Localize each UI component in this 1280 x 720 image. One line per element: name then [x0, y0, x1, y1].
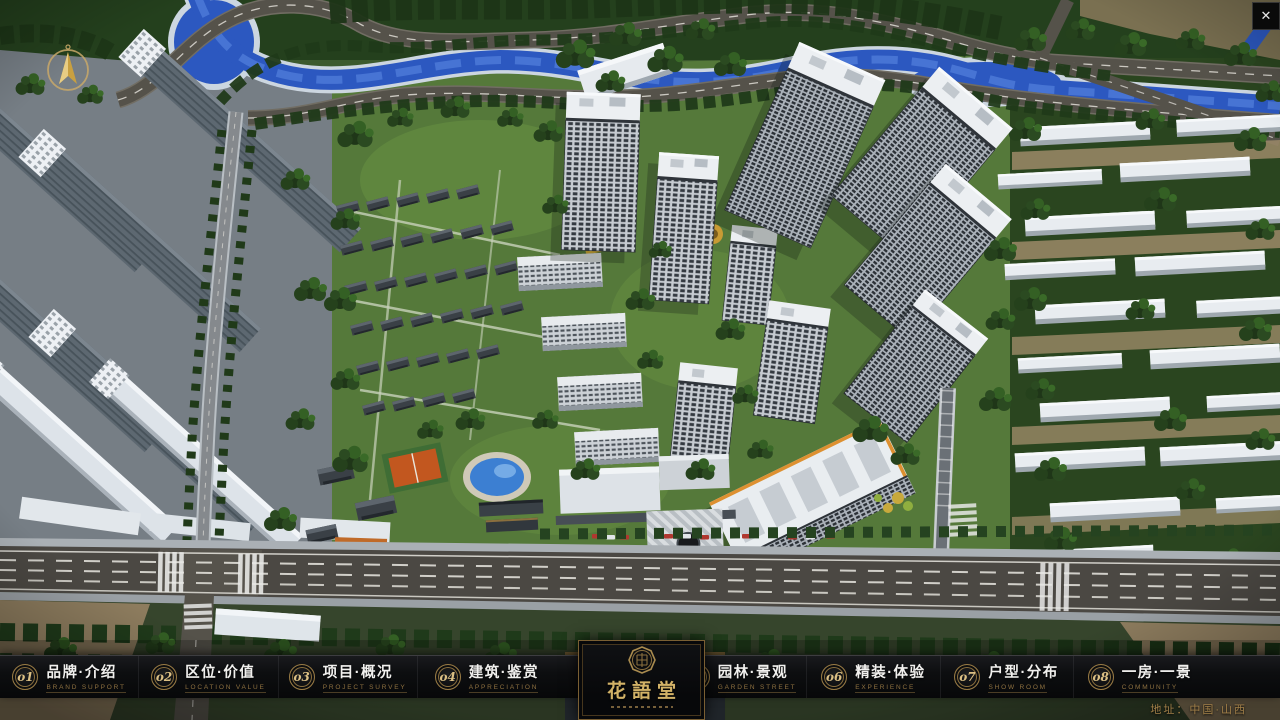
- nav-number-badge: o2: [151, 664, 177, 690]
- nav-label-en: PROJECT SURVEY: [323, 684, 407, 693]
- nav-label-en: SHOW ROOM: [988, 684, 1046, 693]
- nav-label-zh: 精装·体验: [855, 661, 925, 682]
- nav-number-badge: o4: [435, 664, 461, 690]
- close-button[interactable]: ✕: [1252, 2, 1280, 30]
- nav-label-en: LOCATION VALUE: [185, 684, 266, 693]
- logo-seal-icon: [628, 646, 656, 674]
- nav-item-interior[interactable]: o6 精装·体验EXPERIENCE: [806, 656, 939, 698]
- logo-tagline: [611, 706, 673, 708]
- nav-label-en: GARDEN STREET: [718, 684, 797, 693]
- nav-label-zh: 户型·分布: [988, 661, 1058, 682]
- project-logo-panel: 花語堂: [578, 640, 705, 720]
- nav-number-badge: o3: [289, 664, 315, 690]
- nav-label-zh: 园林·景观: [718, 661, 788, 682]
- nav-label-zh: 一房·一景: [1122, 661, 1192, 682]
- nav-label-en: APPRECIATION: [469, 684, 539, 693]
- nav-item-views[interactable]: o8 一房·一景COMMUNITY: [1073, 656, 1206, 698]
- project-address: 地址：中国·山西: [1150, 701, 1247, 717]
- presentation-window: ✕ o1 品牌·介绍BRAND SUPPORT o2 区位·价值LOCATION…: [0, 0, 1280, 720]
- masterplan-3d-view[interactable]: [0, 0, 1280, 720]
- project-logo-title: 花語堂: [601, 676, 682, 703]
- nav-item-project[interactable]: o3 项目·概况PROJECT SURVEY: [278, 656, 417, 698]
- nav-number-badge: o7: [954, 664, 980, 690]
- nav-group-left: o1 品牌·介绍BRAND SUPPORT o2 区位·价值LOCATION V…: [0, 656, 556, 698]
- nav-label-zh: 项目·概况: [323, 661, 393, 682]
- nav-number-badge: o8: [1088, 664, 1114, 690]
- nav-label-zh: 建筑·鉴赏: [469, 661, 539, 682]
- nav-item-architecture[interactable]: o4 建筑·鉴赏APPRECIATION: [417, 656, 556, 698]
- nav-label-en: COMMUNITY: [1122, 684, 1178, 693]
- nav-item-brand[interactable]: o1 品牌·介绍BRAND SUPPORT: [0, 656, 138, 698]
- nav-item-location[interactable]: o2 区位·价值LOCATION VALUE: [138, 656, 277, 698]
- nav-number-badge: o1: [12, 664, 38, 690]
- nav-group-right: o5 园林·景观GARDEN STREET o6 精装·体验EXPERIENCE…: [674, 656, 1206, 698]
- vignette-overlay: [0, 0, 1280, 720]
- nav-number-badge: o6: [821, 664, 847, 690]
- nav-label-zh: 品牌·介绍: [46, 661, 116, 682]
- nav-item-floorplan[interactable]: o7 户型·分布SHOW ROOM: [940, 656, 1073, 698]
- nav-label-en: EXPERIENCE: [855, 684, 915, 693]
- nav-label-en: BRAND SUPPORT: [46, 684, 125, 693]
- nav-label-zh: 区位·价值: [185, 661, 255, 682]
